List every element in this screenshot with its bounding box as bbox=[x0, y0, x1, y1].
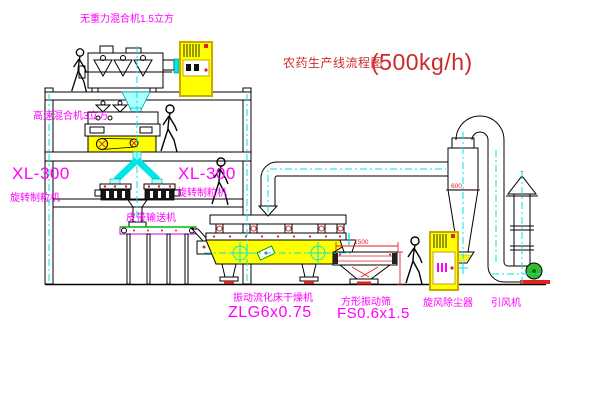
mixer-drive-housing bbox=[88, 136, 156, 152]
motor-symbol bbox=[437, 263, 447, 272]
mixer-discharge-chute bbox=[122, 92, 150, 110]
drawing-capacity: (500kg/h) bbox=[371, 49, 473, 75]
dim-sieve-length: 1500 bbox=[354, 239, 369, 246]
label-cyclone: 旋风除尘器 bbox=[423, 296, 473, 309]
label-granulator-left-model: XL-300 bbox=[12, 164, 70, 183]
label-granulator-right-model: XL-300 bbox=[178, 164, 236, 183]
dryer-bolts bbox=[216, 224, 344, 233]
granulator-left bbox=[95, 184, 131, 200]
label-belt-conveyor: 皮带输送机 bbox=[126, 211, 176, 224]
label-gravity-mixer: 无重力混合机1.5立方 bbox=[80, 12, 174, 25]
label-fan: 引风机 bbox=[491, 296, 521, 309]
high-speed-mixer bbox=[85, 101, 160, 152]
process-flow-diagram: { "title": { "text": "农药生产线流程图", "capaci… bbox=[0, 0, 600, 403]
control-cabinet-ground bbox=[430, 232, 458, 290]
worker-ground bbox=[406, 237, 422, 284]
label-granulator-right-name: 旋转制粒机 bbox=[177, 186, 227, 199]
exhaust-duct bbox=[259, 162, 448, 216]
worker-second-floor bbox=[161, 105, 177, 152]
drawing-title: 农药生产线流程图 bbox=[283, 55, 383, 70]
dryer-supports bbox=[220, 264, 318, 284]
belt-conveyor bbox=[120, 227, 212, 284]
label-granulator-left-name: 旋转制粒机 bbox=[10, 191, 60, 204]
label-dryer-model: ZLG6x0.75 bbox=[228, 304, 312, 321]
dim-cyclone-width: 600 bbox=[451, 183, 462, 190]
granulator-right bbox=[144, 184, 180, 200]
drawing-canvas: 农药生产线流程图 (500kg/h) 无重力混合机1.5立方 高速混合机3立方 … bbox=[0, 0, 600, 403]
control-cabinet-top bbox=[180, 42, 212, 96]
label-high-speed-mixer: 高速混合机3立方 bbox=[33, 109, 109, 122]
fluid-bed-dryer bbox=[206, 215, 352, 284]
label-sieve-model: FS0.6x1.5 bbox=[337, 305, 410, 322]
label-dryer-name: 振动流化床干燥机 bbox=[233, 291, 313, 304]
